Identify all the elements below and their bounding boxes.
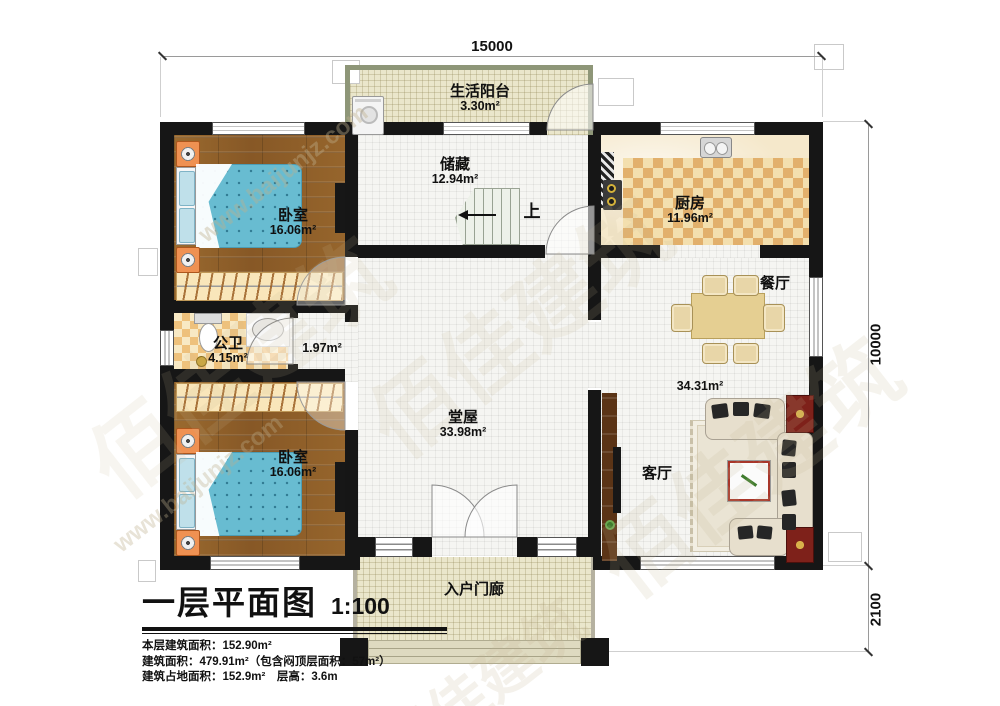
window-dining (809, 277, 823, 357)
sofa-cushion (782, 462, 796, 478)
room-label-kitchen: 厨房 11.96m² (667, 196, 713, 225)
washing-machine-icon (352, 96, 384, 135)
window-kitchen (660, 122, 755, 135)
annotation-box (828, 532, 862, 562)
dining-chair (763, 304, 785, 332)
bed-pillow (179, 458, 195, 492)
burner-icon (607, 184, 616, 193)
title-info-line2: 建筑面积：479.91m²（包含闷顶层面积：57m²） (142, 655, 472, 671)
sofa-cushion (756, 525, 772, 539)
wall-bedrooms-hall-2 (345, 305, 358, 322)
dining-table (691, 293, 765, 339)
window-balcony (443, 122, 530, 135)
tv-icon (335, 183, 345, 233)
nightstand (176, 141, 200, 167)
kitchen-opening-floor (660, 245, 760, 258)
extension-line (823, 565, 868, 566)
sofa-cushion (782, 514, 796, 530)
wall-hall-dining-2 (588, 390, 601, 556)
coffee-table (727, 460, 771, 502)
plan-title: 一层平面图 (142, 576, 317, 624)
dining-chair (733, 275, 759, 296)
wall-porch-seg2 (413, 537, 432, 557)
stair-arrow-icon (458, 210, 468, 220)
plant-sprig-icon (741, 474, 757, 487)
dimension-porch: 2100 (868, 575, 885, 645)
sofa-cushion (733, 402, 749, 416)
porch-column-right (581, 638, 609, 666)
stair-direction-line (468, 214, 496, 216)
wall-kitchen-bottom-2 (760, 245, 809, 258)
wall-bath-bottom (160, 369, 345, 382)
title-rule-thin (142, 633, 447, 634)
extension-line (822, 57, 823, 117)
wardrobe (176, 272, 343, 301)
sofa-cushion (781, 439, 797, 456)
sofa-cushion (781, 489, 797, 506)
room-label-living-area: 34.31m² (677, 379, 724, 393)
sofa-cushion (753, 403, 771, 419)
dimension-height: 10000 (868, 310, 885, 380)
room-label-balcony: 生活阳台 3.30m² (450, 84, 510, 113)
nightstand (176, 428, 200, 454)
window-porch-right (537, 537, 577, 557)
plan-scale: 1:100 (331, 593, 390, 620)
room-label-bathroom: 公卫 4.15m² (208, 336, 248, 365)
window-bathroom (160, 330, 174, 366)
annotation-box (814, 44, 844, 70)
annotation-box (598, 78, 634, 106)
extension-line (609, 651, 868, 652)
extension-line (823, 121, 868, 122)
sofa-cushion (711, 403, 729, 419)
wall-porch-seg3 (517, 537, 537, 557)
window-porch-left (375, 537, 413, 557)
bed-pillow (179, 171, 195, 206)
annotation-box (138, 248, 158, 276)
washer-drum (360, 106, 378, 124)
sink-bowl (714, 140, 730, 156)
stove-icon (603, 180, 622, 210)
dining-chair (702, 343, 728, 364)
bed-pillow (179, 208, 195, 243)
dimension-line-top (162, 56, 822, 57)
room-label-living: 客厅 (642, 466, 672, 481)
washer-panel (355, 99, 381, 102)
window-bedroom-top (212, 122, 305, 135)
sink-basin-icon (252, 318, 284, 341)
floor-plan-canvas: 生活阳台 3.30m² 储藏 12.94m² 卧室 16.06m² 厨房 11.… (0, 0, 1000, 706)
dining-chair (702, 275, 728, 296)
kitchen-sink-icon (700, 137, 732, 158)
window-bedroom-bottom (210, 556, 300, 570)
title-info-line3: 建筑占地面积：152.9m² 层高：3.6m (142, 670, 472, 686)
nightstand (176, 247, 200, 273)
room-label-bedroom-bottom: 卧室 16.06m² (270, 450, 317, 479)
bed-pillow (179, 494, 195, 528)
dimension-width: 15000 (457, 38, 527, 55)
room-label-hall: 堂屋 33.98m² (440, 410, 487, 439)
title-rule-thick (142, 627, 447, 631)
plant-icon (605, 520, 615, 530)
stairs-up-label: 上 (524, 204, 541, 219)
wardrobe (176, 383, 343, 412)
dining-chair (733, 343, 759, 364)
burner-icon (607, 197, 616, 206)
wall-bedrooms-hall-1 (345, 135, 358, 257)
sofa-cushion (737, 525, 753, 539)
kitchen-tile-floor (623, 158, 809, 245)
hall-dining-opening-floor (588, 322, 601, 388)
room-label-storage: 储藏 12.94m² (432, 157, 479, 186)
balcony-wall-top (345, 65, 593, 70)
side-table (786, 527, 814, 563)
extension-line (160, 57, 161, 117)
wall-hall-dining-1 (588, 135, 601, 320)
title-block: 一层平面图 1:100 本层建筑面积：152.90m² 建筑面积：479.91m… (142, 576, 472, 686)
side-table (786, 395, 814, 433)
room-label-corridor: 1.97m² (302, 341, 342, 355)
window-living (640, 556, 775, 570)
room-label-dining: 餐厅 (760, 276, 790, 291)
wall-kitchen-bottom-1 (601, 245, 660, 258)
floor-drain-icon (196, 356, 207, 367)
nightstand (176, 530, 200, 556)
wall-storage-bottom (358, 245, 545, 258)
wall-bedrooms-hall-3 (345, 430, 358, 556)
room-label-bedroom-top: 卧室 16.06m² (270, 208, 317, 237)
tv-icon (613, 447, 621, 513)
dining-chair (671, 304, 693, 332)
wall-bath-right-2 (288, 364, 298, 369)
title-info-line1: 本层建筑面积：152.90m² (142, 639, 472, 655)
wall-bath-top (160, 300, 345, 313)
tv-icon (335, 462, 345, 512)
